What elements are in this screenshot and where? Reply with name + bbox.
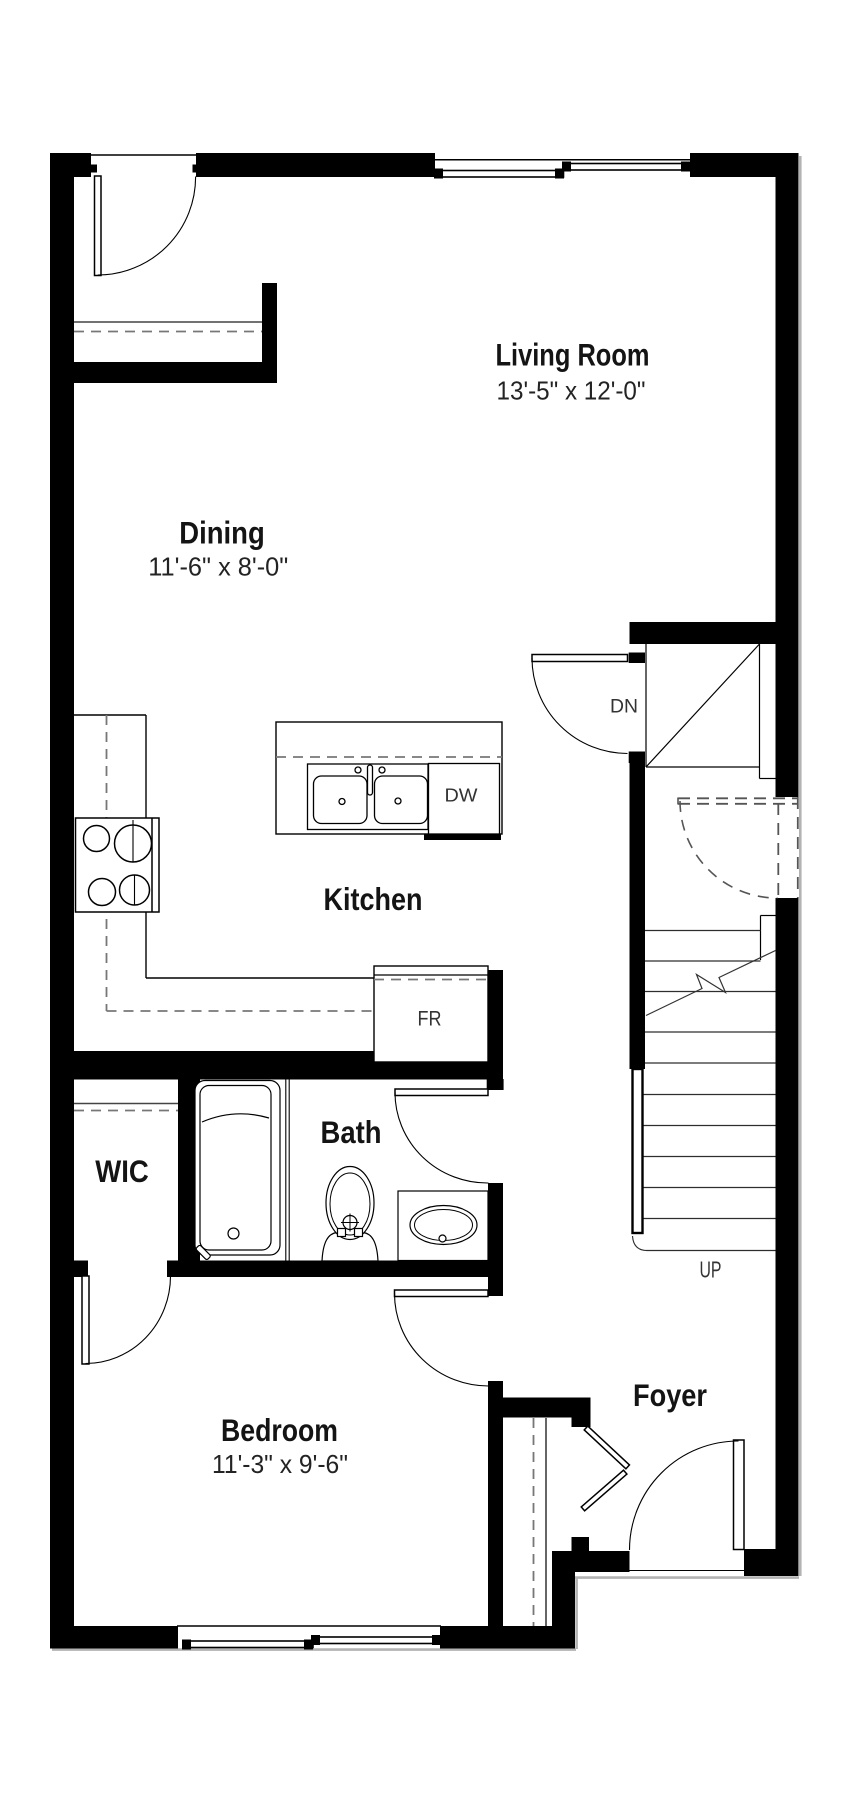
svg-text:Kitchen: Kitchen: [324, 881, 423, 917]
svg-text:Bedroom: Bedroom: [221, 1412, 338, 1448]
svg-text:Living Room: Living Room: [496, 337, 650, 373]
svg-text:Dining: Dining: [179, 515, 265, 551]
svg-text:DW: DW: [445, 785, 479, 806]
svg-text:UP: UP: [700, 1257, 722, 1283]
svg-text:FR: FR: [418, 1008, 442, 1031]
svg-text:11'-3" x 9'-6": 11'-3" x 9'-6": [212, 1449, 348, 1479]
svg-text:WIC: WIC: [95, 1153, 149, 1189]
svg-text:Bath: Bath: [321, 1114, 382, 1150]
svg-text:11'-6" x 8'-0": 11'-6" x 8'-0": [148, 552, 288, 582]
svg-text:13'-5" x 12'-0": 13'-5" x 12'-0": [497, 376, 646, 406]
svg-text:DN: DN: [610, 696, 638, 718]
svg-text:Foyer: Foyer: [633, 1377, 707, 1413]
